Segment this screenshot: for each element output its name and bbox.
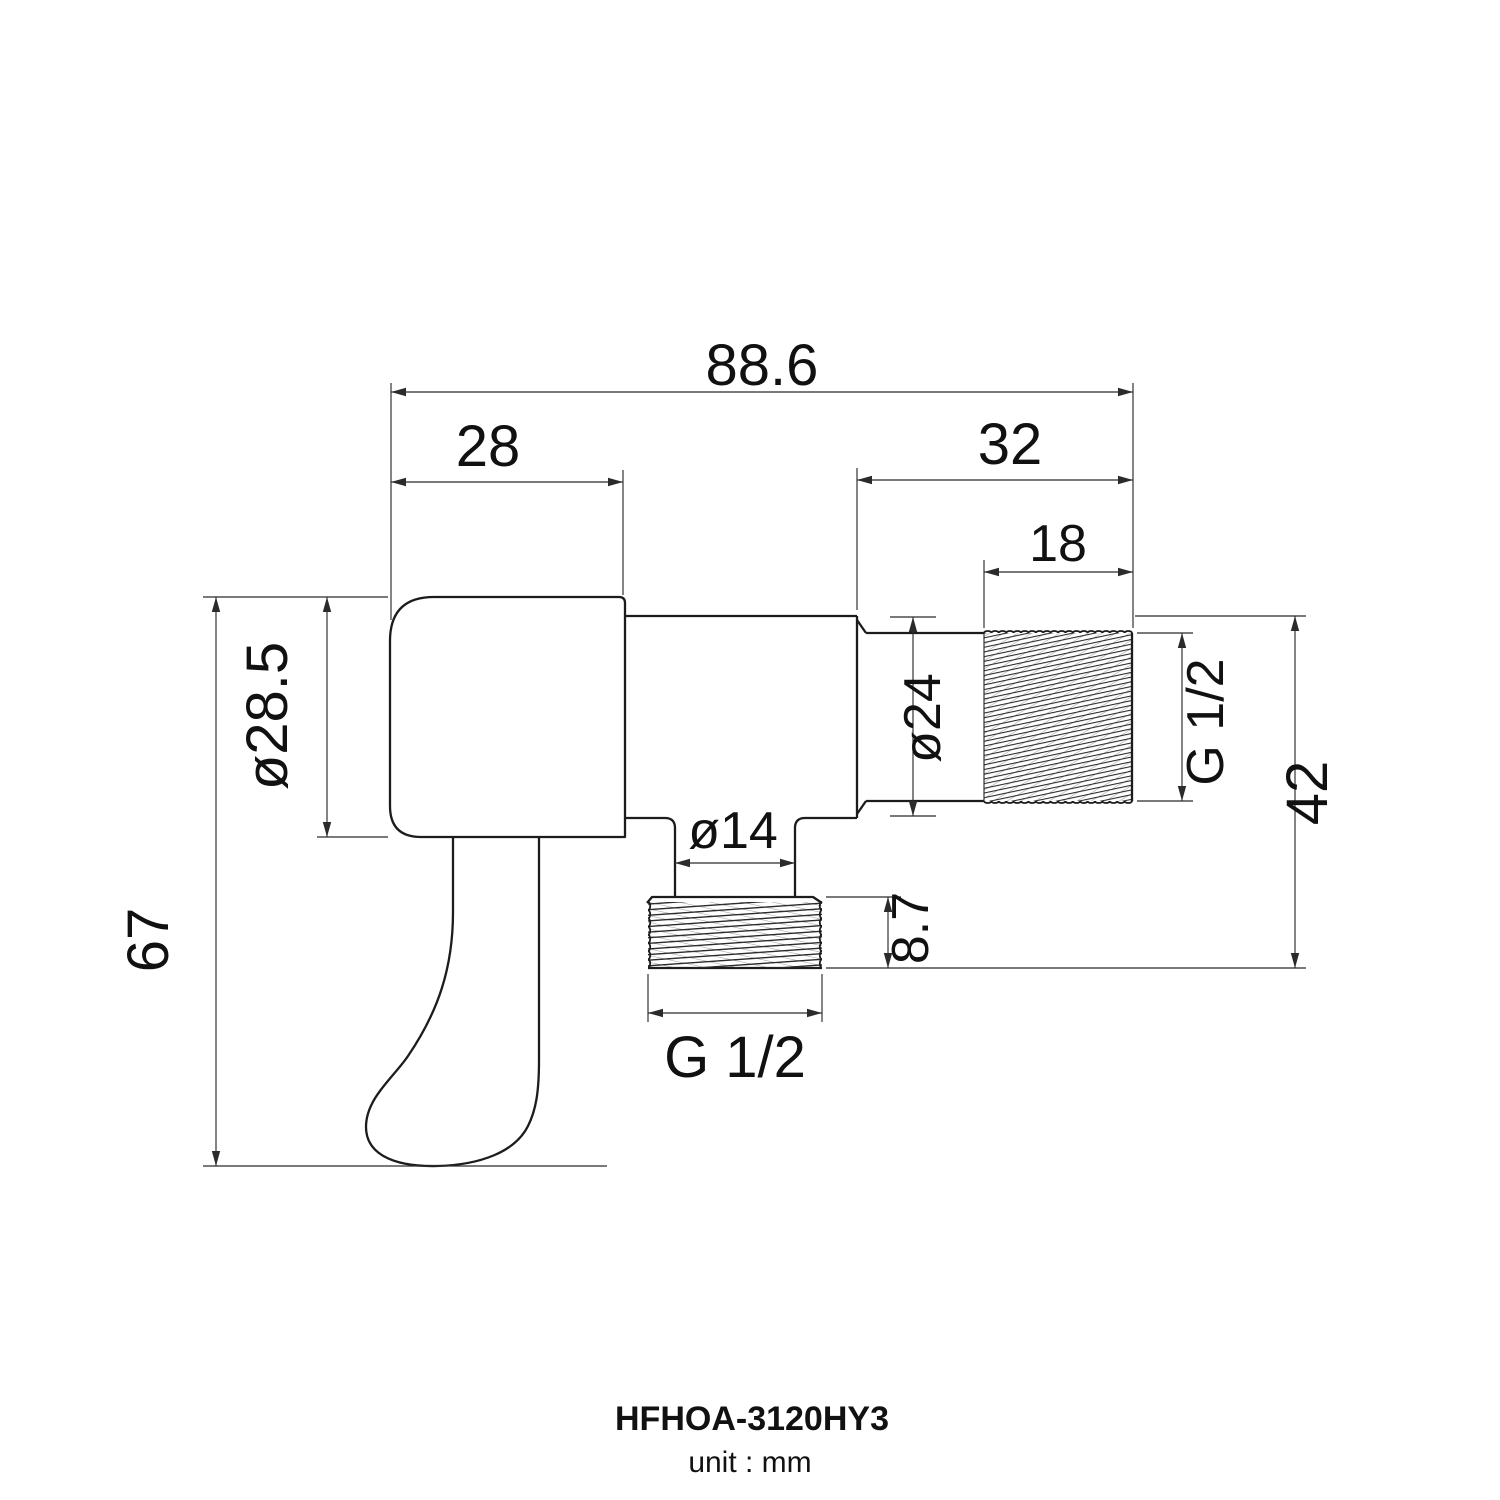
outlet-thread-height-label: 8.7 [882, 892, 940, 964]
inlet-thread-section [984, 631, 1132, 803]
pipe-diameter-label: ø24 [894, 673, 952, 763]
overall-height-label: 67 [116, 908, 181, 973]
model-number: HFHOA-3120HY3 [615, 1400, 889, 1438]
inlet-pipe-chamfer-bottom [857, 801, 866, 814]
overall-width-label: 88.6 [706, 333, 819, 398]
outlet-neck-diameter-label: ø14 [688, 802, 778, 860]
outlet-thread-spec-label: G 1/2 [664, 1025, 806, 1090]
inlet-thread-crest-bottom [984, 801, 1132, 803]
inlet-side-height-label: 42 [1275, 761, 1340, 826]
body-diameter-label: ø28.5 [235, 642, 300, 790]
inlet-pipe-chamfer-top [857, 620, 866, 633]
drawing-canvas: 88.6 28 32 18 ø28.5 67 ø24 G 1/2 42 ø14 … [0, 0, 1500, 1500]
inlet-thread-spec-label: G 1/2 [1177, 658, 1235, 785]
body-width-label: 28 [456, 414, 521, 479]
inlet-thread-length-label: 18 [1029, 515, 1087, 573]
pipe-underside-left [625, 818, 675, 897]
outlet-thread-hatch-overlay [648, 902, 822, 968]
inlet-thread-hatch-overlay [984, 633, 1132, 801]
valve-body [390, 597, 625, 837]
valve-handle [366, 837, 539, 1166]
technical-drawing-page: 88.6 28 32 18 ø28.5 67 ø24 G 1/2 42 ø14 … [0, 0, 1500, 1500]
inlet-thread-crest-top [984, 631, 1132, 633]
pipe-underside-right [795, 818, 857, 897]
outlet-thread-section [648, 902, 822, 968]
inlet-length-label: 32 [978, 412, 1043, 477]
unit-note: unit : mm [688, 1446, 811, 1479]
